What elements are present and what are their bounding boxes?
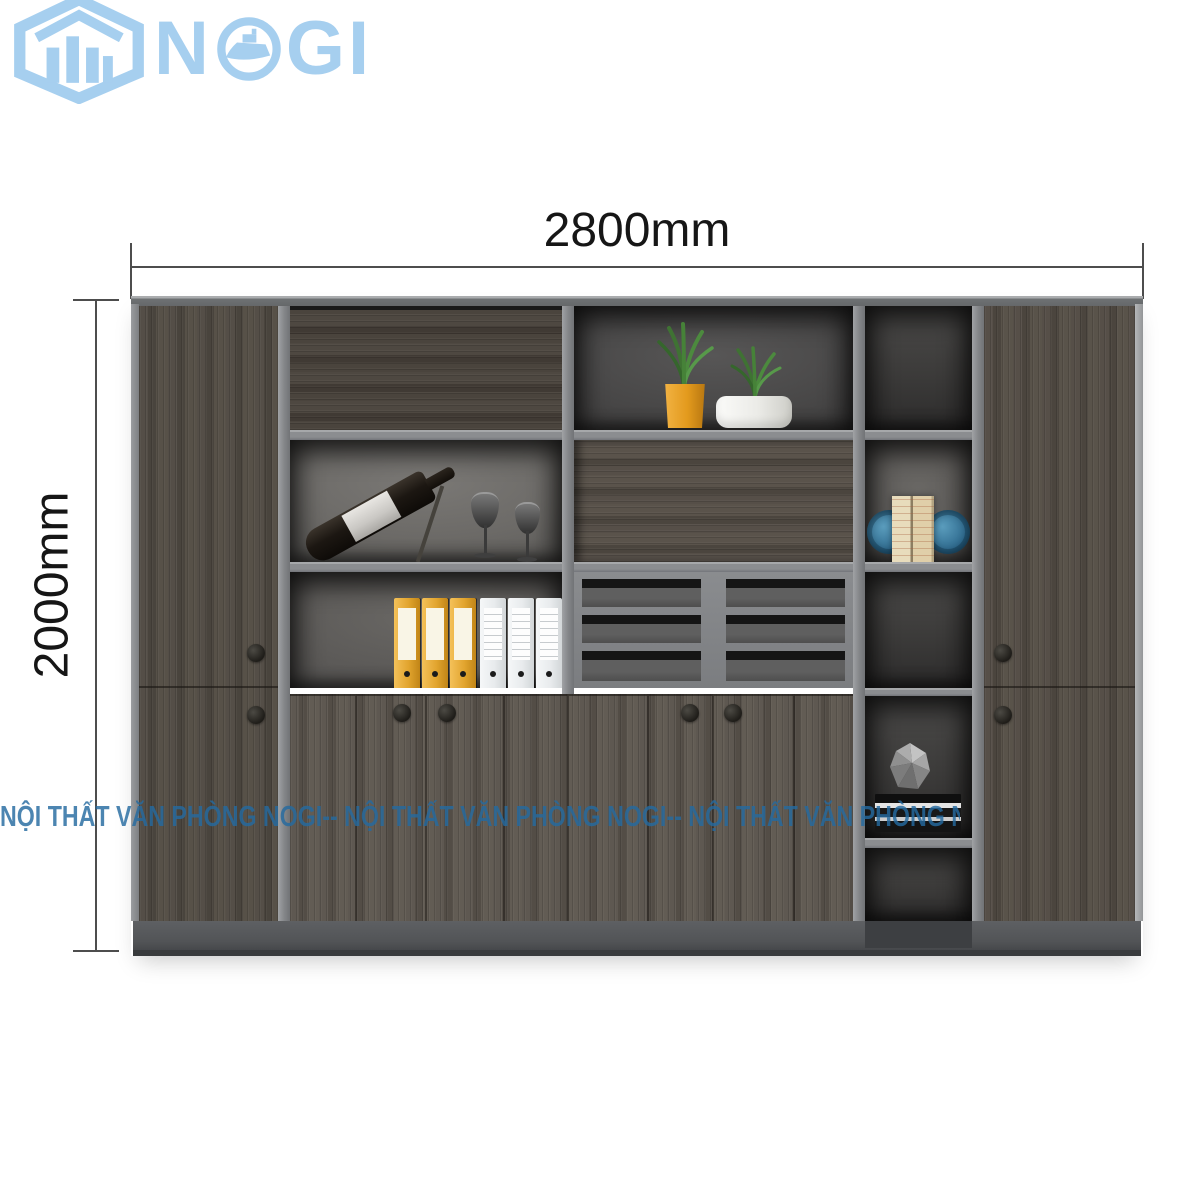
binder-white — [508, 598, 534, 688]
wine-glass — [471, 492, 499, 562]
plant-icon — [647, 320, 721, 390]
cubby-empty — [865, 848, 972, 921]
lower-sliding-panel — [574, 440, 853, 562]
door-handle — [724, 704, 742, 722]
door-handle — [438, 704, 456, 722]
shelf-board — [290, 430, 562, 440]
ship-icon — [214, 14, 284, 84]
upper-sliding-panel — [290, 310, 562, 430]
wine-bottle-neck — [424, 466, 456, 491]
grid-slot — [726, 651, 845, 681]
shelf-board — [574, 562, 853, 572]
brand-logo: N GI — [4, 0, 372, 104]
cabinet — [131, 296, 1143, 956]
geometric-decor — [886, 740, 934, 794]
plant-pot-white — [716, 396, 792, 428]
wine-glass-stem — [526, 531, 529, 557]
width-dimension-line — [131, 266, 1143, 268]
binder-white — [536, 598, 562, 688]
shelf-board — [574, 430, 853, 440]
door-handle — [247, 706, 265, 724]
shelf-board — [865, 688, 972, 696]
wine-glass — [515, 502, 540, 562]
binder-white — [480, 598, 506, 688]
height-dimension-line — [95, 300, 97, 952]
cubby-empty — [865, 572, 972, 688]
shelf-board — [865, 838, 972, 848]
wine-glass-stem — [484, 525, 487, 554]
shelf-board — [865, 562, 972, 572]
grid-slot — [582, 615, 701, 643]
plinth-edge — [133, 950, 1141, 956]
binder-yellow — [422, 598, 448, 688]
cabinet-right-frame — [1135, 304, 1143, 921]
cabinet-top-frame — [131, 296, 1143, 306]
logo-letter-gi: GI — [286, 11, 372, 87]
door-handle — [994, 706, 1012, 724]
height-dimension-tick-top — [73, 299, 119, 301]
logo-letter-n: N — [154, 11, 212, 87]
width-dimension-tick-right — [1142, 243, 1144, 299]
width-dimension-label: 2800mm — [131, 203, 1143, 258]
grid-slot — [726, 579, 845, 607]
plant-pot-yellow — [662, 384, 708, 428]
cubby-empty — [865, 306, 972, 430]
shelf-board — [290, 562, 562, 572]
height-dimension-tick-bottom — [73, 950, 119, 952]
binder-yellow — [450, 598, 476, 688]
plant-icon — [716, 342, 794, 400]
product-image: N GI 2800mm 2000mm — [0, 0, 1200, 1200]
shelf-board — [865, 430, 972, 440]
grid-slot — [582, 579, 701, 607]
wine-glass-bowl — [471, 492, 499, 528]
grid-slot — [726, 615, 845, 643]
divider-frame — [972, 306, 984, 921]
binder-yellow — [394, 598, 420, 688]
nogi-logo-text: N GI — [154, 11, 372, 87]
plinth-recess — [865, 921, 972, 948]
wine-glass-bowl — [515, 502, 540, 534]
right-door-seam — [984, 686, 1135, 688]
width-dimension-tick-left — [130, 243, 132, 299]
door-handle — [994, 644, 1012, 662]
divider-frame — [562, 306, 574, 694]
watermark: NỘI THẤT VĂN PHÒNG NOGI-- NỘI THẤT VĂN P… — [0, 797, 960, 839]
books-upright — [892, 496, 934, 562]
plinth — [133, 921, 1141, 950]
nogi-logo-icon — [4, 0, 154, 104]
height-dimension-label: 2000mm — [25, 492, 80, 679]
door-handle — [393, 704, 411, 722]
door-top-seam — [290, 694, 853, 696]
door-handle — [681, 704, 699, 722]
left-door-seam — [139, 686, 278, 688]
right-door — [984, 306, 1135, 921]
grid-slot — [582, 651, 701, 681]
wine-glass-base — [474, 553, 496, 558]
door-handle — [247, 644, 265, 662]
